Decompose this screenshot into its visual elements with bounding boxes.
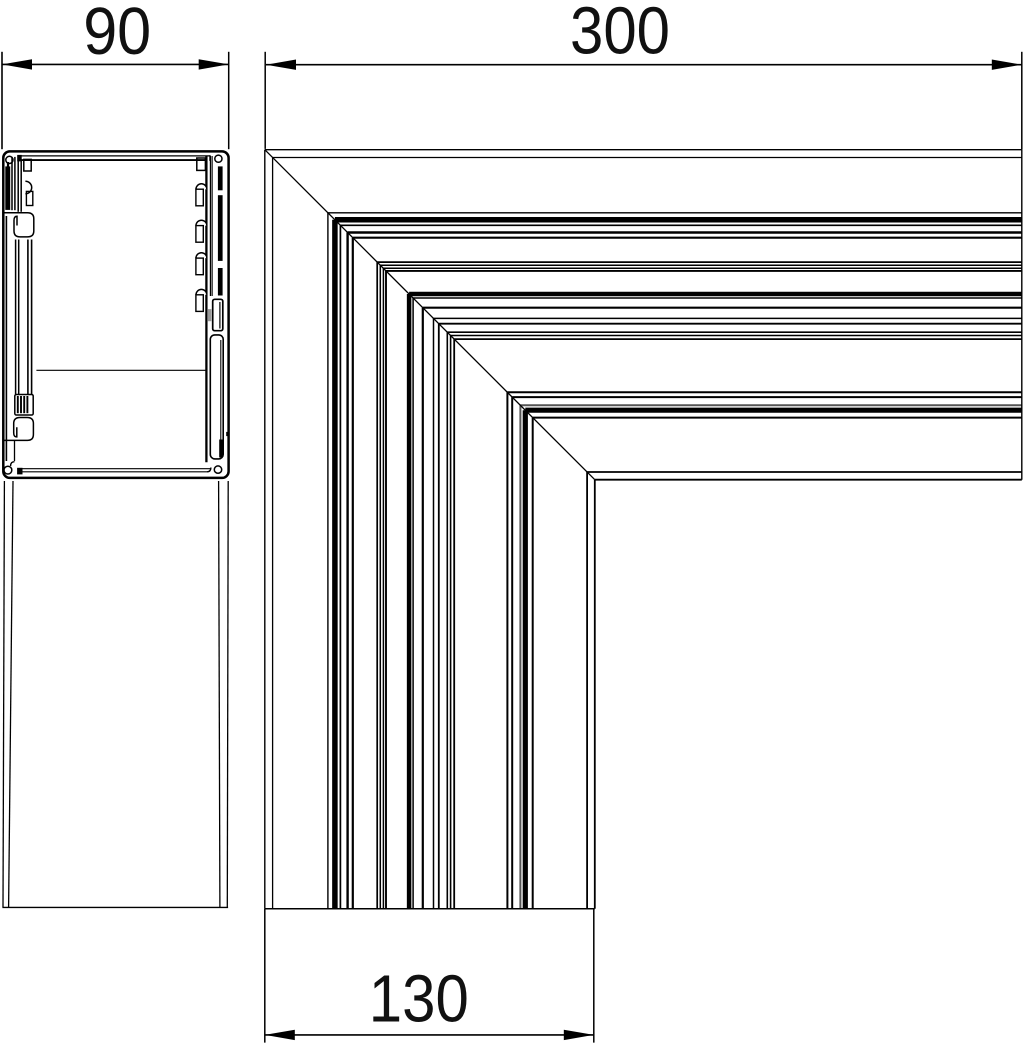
- svg-text:130: 130: [369, 962, 469, 1037]
- svg-text:90: 90: [83, 0, 151, 69]
- svg-text:300: 300: [570, 0, 670, 69]
